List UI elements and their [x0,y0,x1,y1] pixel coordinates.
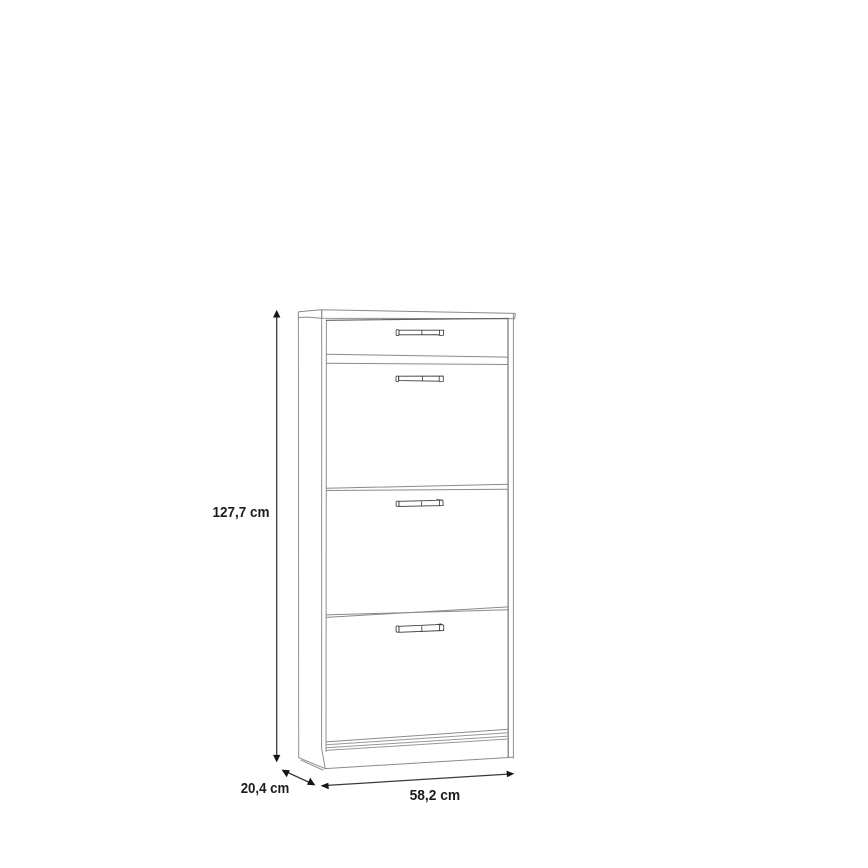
svg-text:58,2 cm: 58,2 cm [410,787,461,804]
svg-text:127,7 cm: 127,7 cm [213,504,270,521]
svg-text:20,4 cm: 20,4 cm [241,780,290,797]
